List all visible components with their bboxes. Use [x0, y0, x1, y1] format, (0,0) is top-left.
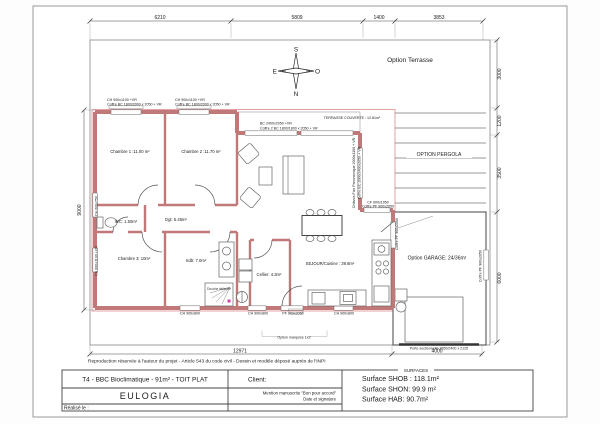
win-ch1-l2: Coffre BC 1800/2000 x 2050 + VR [107, 103, 162, 107]
dim-top-4: 3853 [433, 15, 444, 21]
win-ch2-l2: Coffre BC 1800/2000 x 2050 + VR [175, 103, 230, 107]
dim-right-2: 1200 [497, 115, 503, 126]
win-ch2-l1: CH 900x1100 +VR [175, 98, 205, 102]
terrasse-couverte-label: TERRASSE COUVERTE : 12.81m² [324, 116, 381, 120]
date-signature-label: Date et signature [303, 397, 336, 402]
dining-table-icon [302, 216, 342, 236]
room-label-chambre1: Chambre 1 :11.00 m² [110, 149, 150, 154]
dim-right-3: 3500 [497, 167, 503, 178]
room-label-chambre3: Chambre 3: 10m² [118, 256, 151, 261]
floor-plan: 6210 5809 1400 3853 3000 1200 3500 6000 … [0, 0, 600, 424]
sheet-border [33, 6, 567, 417]
drain-dot [228, 300, 231, 303]
surface-shob: Surface SHOB : 118.1m² [362, 376, 440, 383]
win-fixe-l2: Coffre BC 2000/2400x2050 + VR [358, 146, 362, 199]
win-fixe-l1: Châssis Fixe Panoramique 2000x1100 + VR [352, 137, 356, 208]
room-label-chambre2: Chambre 2 :11.70 m² [181, 149, 221, 154]
dim-right-1: 3000 [497, 68, 503, 79]
option-terrasse-label: Option Terrasse [387, 57, 433, 64]
compass-s: S [294, 47, 299, 54]
win-left-1: CH 600x750 [95, 196, 99, 216]
dim-top-3: 1400 [373, 15, 384, 21]
project-title: T4 - BBC Bioclimatique - 91m² - TOIT PLA… [82, 377, 208, 384]
compass-e: E [273, 69, 278, 76]
sofa-icon [283, 156, 304, 194]
room-label-sdb: Sdb: 7.0m² [186, 258, 207, 263]
win-bottom-2: CH 900x800 [248, 312, 268, 316]
room-label-wc: WC: 1.50m² [115, 219, 138, 224]
mention-text: Mention manuscrite "Bon pour accord" [263, 391, 337, 396]
dim-bottom-1: 12971 [233, 349, 247, 355]
win-cf-l2: Coffre PF 900x2050 [362, 205, 394, 209]
room-label-cellier: Cellier: 4.3m² [257, 272, 283, 277]
dim-top-1: 6210 [154, 15, 165, 21]
surface-hab: Surface HAB: 90.7m² [362, 397, 429, 404]
win-ch1-l1: CH 900x1100 +VR [107, 98, 137, 102]
compass-n: N [294, 91, 299, 98]
room-label-douche: Douche italienne [207, 287, 231, 291]
win-pf-garage: Coffre PF 900x2050 [395, 218, 399, 250]
surface-shon: Surface SHON: 99.9 m² [362, 387, 437, 394]
option-garage: Option GARAGE: 24/36m² Porte sectionnell… [393, 212, 486, 351]
company-name: EULOGIA [120, 391, 171, 401]
win-bc-l2: Coffre 2 BC 1800/1800 x 2050 + VR [260, 127, 318, 131]
client-label: Client: [248, 377, 267, 384]
win-bottom-1: CH 900x800 [180, 312, 200, 316]
room-label-dgt: Dgt: 5.45m² [165, 217, 187, 222]
win-bottom-3: PF 900x2050 [282, 312, 303, 316]
dim-top-2: 5809 [291, 15, 302, 21]
porte-garage-label: Porte sectionnelle 2950/2400 x 2125 [410, 347, 468, 351]
dim-left-1: 9000 [77, 204, 83, 215]
sink-icon [378, 246, 385, 253]
toilet-icon [97, 217, 103, 228]
win-pf-garage-r: Coffre PF 900x2050 [479, 250, 483, 282]
surfaces-title: SURFACES [404, 368, 428, 373]
option-garage-label: Option GARAGE: 24/36m² [408, 256, 467, 262]
drawing-sheet: 6210 5809 1400 3853 3000 1200 3500 6000 … [0, 0, 600, 424]
dim-right-4: 6000 [497, 272, 503, 283]
win-bc-l1: BC 2400x2050 +VR [260, 122, 292, 126]
win-bottom-4: CH 900x800 [334, 312, 354, 316]
room-label-sejour: SEJOUR/Cuisine : 39.8m² [306, 261, 355, 266]
compass-o: O [315, 69, 320, 76]
disclaimer-text: Reproduction réservée à l'auteur du proj… [88, 359, 326, 365]
option-marquise-label: Option marquise 1x2 [277, 336, 310, 340]
coffee-table-icon [259, 167, 272, 185]
option-pergola-label: OPTION PERGOLA [417, 152, 462, 158]
win-left-2: CH 600x1100 +VR [95, 246, 99, 276]
realise-label: Réalisé le : [64, 406, 89, 412]
